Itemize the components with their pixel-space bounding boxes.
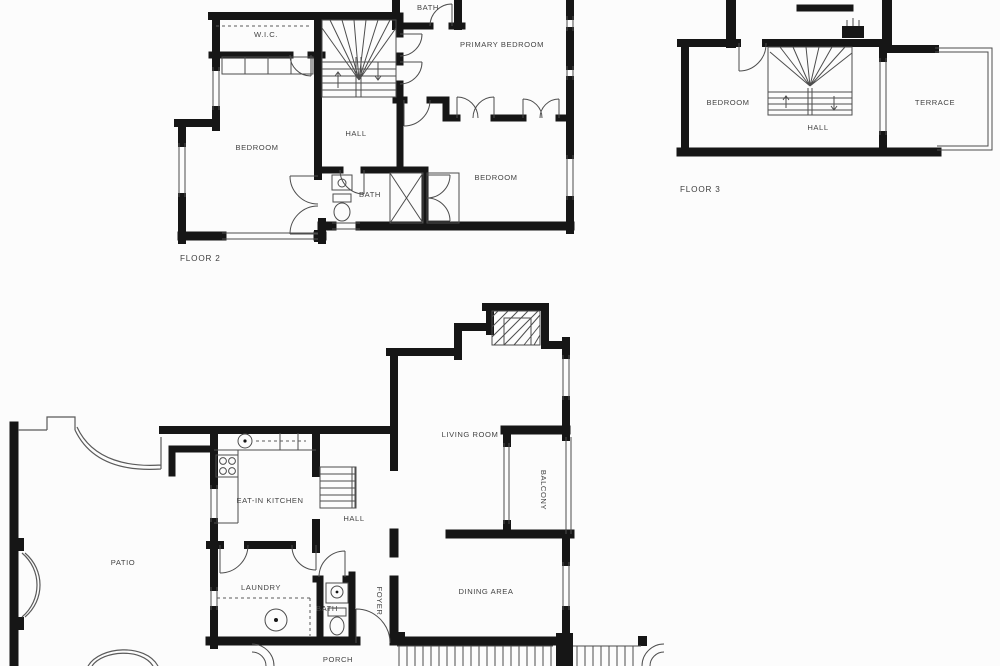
floor1-label-bath: BATH (316, 604, 338, 613)
floor3-title: FLOOR 3 (680, 185, 721, 194)
floor3-plan: BEDROOM HALL TERRACE FLOOR 3 (680, 0, 992, 194)
floor1-label-kitchen: EAT-IN KITCHEN (236, 496, 303, 505)
floor2-title: FLOOR 2 (180, 254, 221, 263)
floor2-label-bath-top: BATH (417, 3, 439, 12)
floor2-label-bedroom-left: BEDROOM (235, 143, 278, 152)
floor2-label-bedroom-right: BEDROOM (474, 173, 517, 182)
floorplan-drawing: BATH W.I.C. PRIMARY BEDROOM HALL BEDROOM… (0, 0, 1000, 666)
floor2-label-wic: W.I.C. (254, 30, 278, 39)
floor1-label-laundry: LAUNDRY (241, 583, 281, 592)
floor1-label-hall: HALL (343, 514, 364, 523)
floor1-label-porch: PORCH (323, 655, 353, 664)
floor1-label-dining: DINING AREA (459, 587, 514, 596)
floor1-label-balcony: BALCONY (539, 470, 548, 510)
floorplan-page: BATH W.I.C. PRIMARY BEDROOM HALL BEDROOM… (0, 0, 1000, 666)
floor1-label-patio: PATIO (111, 558, 135, 567)
floor3-label-terrace: TERRACE (915, 98, 955, 107)
floor2-label-bath-mid: BATH (359, 190, 381, 199)
vent-fixture (842, 26, 864, 38)
floor1-label-living-room: LIVING ROOM (442, 430, 499, 439)
floor3-label-bedroom: BEDROOM (706, 98, 749, 107)
floor1-label-foyer: FOYER (375, 587, 384, 616)
floor1-plan: PATIO EAT-IN KITCHEN HALL LIVING ROOM BA… (14, 307, 664, 666)
floor3-label-hall: HALL (807, 123, 828, 132)
floor2-label-hall: HALL (345, 129, 366, 138)
floor2-plan: BATH W.I.C. PRIMARY BEDROOM HALL BEDROOM… (178, 0, 573, 263)
floor2-label-primary-bedroom: PRIMARY BEDROOM (460, 40, 544, 49)
